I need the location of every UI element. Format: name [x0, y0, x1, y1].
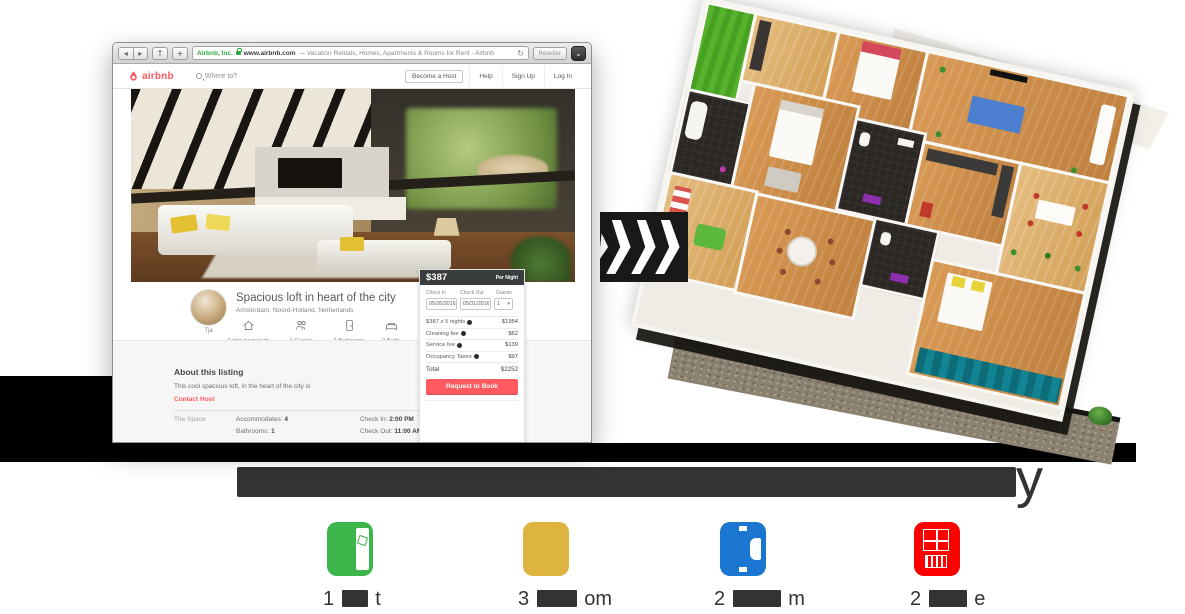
fee-label: $387 x 5 nights — [426, 319, 472, 325]
checkin-label: Check In: — [360, 416, 387, 423]
url-page-title: — Vacation Rentals, Homes, Apartments & … — [299, 50, 515, 57]
chevron-icon — [631, 220, 658, 274]
photo-pillow — [170, 214, 198, 233]
guests-value: 1 — [497, 301, 500, 307]
space-label: The Space — [174, 416, 205, 423]
furniture-bed — [769, 99, 825, 165]
accommodates-value: 4 — [284, 416, 288, 423]
booking-body: Check In Check Out Guests 05/26/2016 05/… — [420, 285, 524, 406]
black-band-bottom — [112, 443, 1136, 462]
booking-card: $387 Per Night Check In Check Out Guests… — [419, 269, 525, 443]
furniture-tv — [990, 69, 1028, 83]
overflow-button[interactable]: ⌄ — [571, 46, 586, 61]
fee-value: $139 — [505, 342, 518, 348]
furniture-bed — [852, 41, 902, 100]
nav-button-group: ◂ ▸ — [118, 47, 148, 60]
legend-count: 2 — [714, 588, 725, 610]
photo-pillow — [340, 237, 364, 251]
fee-row: Cleaning fee $62 — [426, 328, 518, 340]
hero-photo — [131, 89, 575, 282]
legend-label-1: 1 t — [323, 588, 381, 611]
info-icon[interactable] — [467, 320, 472, 325]
checkin-row: Check In: 2:00 PM — [360, 416, 414, 423]
field-labels: Check In Check Out Guests — [426, 290, 518, 296]
listing-location: Amsterdam, Noord-Holland, Netherlands — [236, 307, 353, 314]
black-band-left — [0, 376, 112, 462]
fee-label: Service fee — [426, 342, 462, 348]
help-link[interactable]: Help — [469, 66, 501, 87]
request-to-book-button[interactable]: Request to Book — [426, 379, 518, 394]
browser-window: ◂ ▸ ↑ + Airbnb, Inc. www.airbnb.com — Va… — [112, 42, 592, 443]
checkout-input[interactable]: 05/31/2016 — [460, 298, 491, 310]
booking-footer-divider — [426, 400, 518, 406]
furniture-toilet — [858, 131, 871, 147]
legend-green-cutout — [356, 528, 369, 570]
nightly-price: $387 — [426, 272, 447, 283]
total-row: Total $2252 — [426, 362, 518, 375]
url-domain: www.airbnb.com — [244, 50, 296, 57]
furniture-mat-purple — [862, 193, 881, 205]
fee-row: $387 x 5 nights $1954 — [426, 316, 518, 328]
legend-suffix: m — [788, 588, 805, 610]
contact-host-link[interactable]: Contact Host — [174, 396, 214, 403]
furniture-rug-blue — [967, 96, 1026, 134]
guests-field-label: Guests — [496, 290, 518, 296]
accommodates-label: Accommodates: — [236, 416, 283, 423]
total-label: Total — [426, 366, 439, 373]
bathrooms-value: 1 — [271, 428, 275, 435]
about-heading: About this listing — [174, 367, 243, 377]
fee-value: $1954 — [502, 319, 518, 325]
belo-icon — [127, 70, 140, 83]
redacted-text-block — [537, 590, 577, 607]
furniture-toilet — [879, 231, 892, 246]
fee-value: $97 — [508, 354, 518, 360]
bathrooms-label: Bathrooms: — [236, 428, 269, 435]
legend-suffix: t — [375, 588, 381, 610]
headline-visible-suffix: y — [1016, 452, 1043, 506]
fee-label: Occupancy Taxes — [426, 354, 479, 360]
legend-count: 1 — [323, 588, 334, 610]
transform-arrow — [600, 212, 688, 282]
legend-label-2: 3 om — [518, 588, 612, 611]
redacted-text-block — [929, 590, 967, 607]
chevron-down-icon: ▾ — [507, 301, 510, 307]
guests-icon — [295, 319, 308, 332]
about-text: This cool spacious loft, in the heart of… — [174, 383, 310, 390]
info-icon[interactable] — [457, 343, 462, 348]
legend-count: 2 — [910, 588, 921, 610]
wardrobe-grid-glyph — [923, 529, 949, 551]
bush — [1087, 405, 1114, 427]
login-link[interactable]: Log In — [544, 66, 581, 87]
become-host-button[interactable]: Become a Host — [405, 70, 463, 83]
navbar-links: Become a Host Help Sign Up Log In — [405, 64, 581, 88]
fee-label: Cleaning fee — [426, 331, 466, 337]
checkin-input[interactable]: 05/26/2016 — [426, 298, 457, 310]
checkout-field-label: Check Out — [460, 290, 496, 296]
redacted-text-block — [733, 590, 781, 607]
home-icon — [242, 319, 255, 332]
plant — [939, 66, 946, 73]
furniture-rug — [764, 166, 802, 193]
legend-suffix: om — [584, 588, 612, 610]
reader-button[interactable]: Reader — [533, 47, 567, 60]
booking-header: $387 Per Night — [420, 270, 524, 285]
total-value: $2252 — [501, 366, 518, 373]
address-bar[interactable]: Airbnb, Inc. www.airbnb.com — Vacation R… — [192, 46, 529, 60]
share-icon[interactable]: ↑ — [152, 47, 168, 60]
photo-lamp — [434, 218, 460, 236]
bathrooms-row: Bathrooms: 1 — [236, 428, 275, 435]
legend-suffix: e — [974, 588, 985, 610]
search-icon — [196, 73, 202, 79]
lock-icon — [236, 51, 241, 55]
checkout-label: Check Out: — [360, 428, 393, 435]
fee-row: Occupancy Taxes $97 — [426, 351, 518, 363]
legend-label-4: 2 e — [910, 588, 985, 611]
redacted-text-block — [342, 590, 368, 607]
furniture-red-unit — [919, 201, 933, 218]
signup-link[interactable]: Sign Up — [502, 66, 544, 87]
fee-text: $387 x 5 nights — [426, 319, 465, 325]
legend-icon-gold — [523, 522, 569, 576]
bed-icon — [385, 319, 398, 332]
info-icon[interactable] — [474, 354, 479, 359]
fee-row: Service fee $139 — [426, 339, 518, 351]
legend-icon-red — [914, 522, 960, 576]
headline-redacted-block — [237, 467, 1016, 497]
forward-icon[interactable]: ▸ — [134, 48, 148, 59]
furniture-tub — [684, 100, 709, 141]
back-icon[interactable]: ◂ — [119, 48, 134, 59]
legend-blue-notch — [739, 567, 747, 572]
photo-tv — [278, 158, 342, 188]
search-placeholder: Where to? — [205, 73, 237, 80]
browser-toolbar: ◂ ▸ ↑ + Airbnb, Inc. www.airbnb.com — Va… — [113, 43, 591, 64]
legend-icon-blue — [720, 522, 766, 576]
new-tab-icon[interactable]: + — [172, 47, 188, 60]
refresh-icon[interactable]: ↻ — [517, 49, 524, 58]
brand-name: airbnb — [142, 71, 174, 82]
legend-label-3: 2 m — [714, 588, 805, 611]
legend-count: 3 — [518, 588, 529, 610]
checkin-value: 2:00 PM — [389, 416, 414, 423]
airbnb-navbar: airbnb Where to? Become a Host Help Sign… — [113, 64, 591, 89]
legend-blue-fixture — [750, 538, 761, 560]
airbnb-logo[interactable]: airbnb — [127, 70, 174, 83]
chevron-icon — [656, 220, 683, 274]
fee-text: Cleaning fee — [426, 331, 459, 337]
fee-text: Service fee — [426, 342, 455, 348]
furniture-wardrobe — [749, 20, 772, 71]
photo-pillow — [206, 214, 231, 231]
furniture-rug-green — [693, 223, 727, 251]
composite-canvas: ◂ ▸ ↑ + Airbnb, Inc. www.airbnb.com — Va… — [0, 0, 1185, 614]
listing-title: Spacious loft in heart of the city — [236, 292, 396, 304]
accent-magenta — [719, 166, 726, 173]
search-input[interactable]: Where to? — [196, 73, 237, 80]
wardrobe-base-glyph — [925, 555, 947, 568]
furniture-chairs — [784, 228, 791, 235]
furniture-round-table — [784, 234, 820, 270]
furniture-sink — [897, 138, 914, 148]
checkin-field-label: Check In — [426, 290, 460, 296]
legend-icon-green — [327, 522, 373, 576]
furniture-chairs — [1033, 192, 1040, 199]
ev-cert-name: Airbnb, Inc. — [197, 50, 233, 57]
info-icon[interactable] — [461, 331, 466, 336]
furniture-table — [1035, 199, 1076, 226]
chevron-icon — [599, 233, 610, 261]
checkout-row: Check Out: 11:00 AM — [360, 428, 422, 435]
plant — [1010, 249, 1017, 256]
furniture-sofa — [1089, 104, 1117, 166]
field-inputs: 05/26/2016 05/31/2016 1 ▾ — [426, 298, 518, 310]
guests-select[interactable]: 1 ▾ — [494, 298, 513, 310]
fee-text: Occupancy Taxes — [426, 354, 472, 360]
fee-value: $62 — [508, 331, 518, 337]
legend-blue-notch — [739, 526, 747, 531]
chevron-icon — [606, 220, 633, 274]
accommodates-row: Accommodates: 4 — [236, 416, 288, 423]
door-icon — [343, 319, 356, 332]
furniture-mat-purple — [890, 272, 909, 284]
per-night-label: Per Night — [496, 275, 518, 281]
photo-ottoman — [317, 240, 450, 271]
